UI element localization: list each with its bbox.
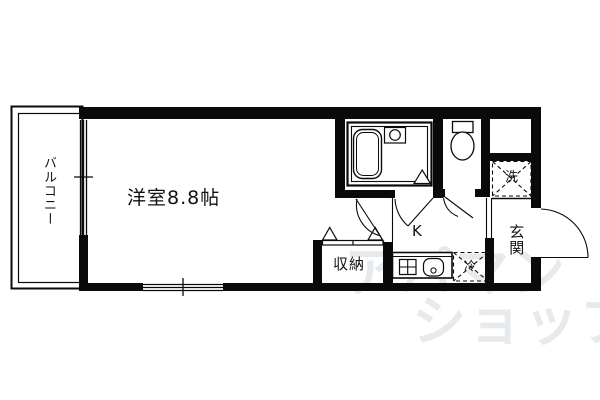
label-balcony: バルコニー	[40, 156, 55, 226]
wall-storeroom-bottom	[481, 153, 541, 161]
toilet-door-leaf	[445, 197, 473, 218]
label-washer: 洗	[505, 171, 518, 186]
south-window	[143, 278, 223, 296]
wall-top	[79, 107, 541, 119]
wall-right-lower	[531, 257, 541, 291]
wall-bottom-right	[223, 283, 541, 291]
unit-bath	[348, 123, 432, 186]
label-fridge: 冷	[464, 260, 476, 274]
bath-door-arc	[395, 199, 408, 226]
toilet-door-arc	[444, 198, 459, 217]
wall-kitchen-entrance	[485, 238, 494, 283]
wall-bottom-left	[79, 283, 143, 291]
kitchen-entrance-opening	[393, 198, 492, 242]
label-entrance: 玄関	[507, 224, 524, 256]
entry-door-arc	[541, 209, 588, 258]
wall-bath-left	[335, 119, 345, 198]
label-kitchen: K	[412, 223, 422, 240]
label-western-room: 洋室8.8帖	[127, 188, 220, 210]
closet-door-triangle-left	[323, 228, 338, 241]
wall-room-kitchen	[383, 242, 393, 283]
label-closet: 収納	[333, 256, 365, 273]
floorplan-canvas: アパマン ショップ	[0, 0, 600, 400]
wall-bath-toilet	[433, 119, 443, 198]
toilet-icon	[451, 122, 474, 161]
balcony-window	[74, 120, 93, 235]
closet-door	[323, 228, 384, 246]
wall-closet-left	[313, 240, 322, 283]
wall-bath-bottom	[335, 190, 395, 198]
floorplan-drawing	[0, 0, 600, 400]
kitchen-counter	[393, 253, 453, 279]
wall-toilet-stub-left	[433, 189, 445, 197]
